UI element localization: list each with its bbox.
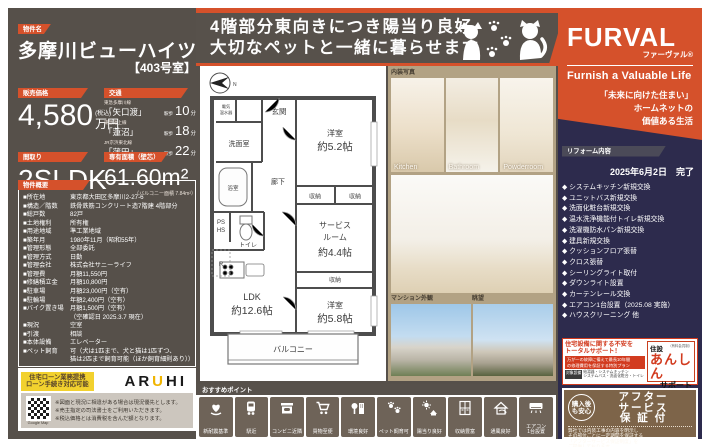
room-label-ldk: LDK [243,292,261,302]
access-ribbon: 交通 [104,88,188,98]
point-tile-convenience: コンビニ近隣 [270,397,304,437]
slogan-line2: ホームネットの [567,102,693,115]
overview-key: ■現況 [23,322,70,331]
anshin-logo-main: あんしん [650,353,692,381]
overview-value: 月額23,000円（空有） [70,288,191,297]
photo-caption: Powderroom [503,164,543,171]
overview-key: ■修繕積立金 [23,279,70,288]
living-room-photo [391,175,553,293]
overview-key: ■駐車場 [23,288,70,297]
convenience-store-icon [279,400,295,416]
room-label-heater: 電気 [222,103,230,110]
overview-key: ■バイク置き場 [23,305,70,314]
point-label: ペット飼育可 [379,430,409,436]
room-label-toilet: トイレ [239,243,257,249]
google-map-qr-code [26,396,51,421]
point-label: 収納豊富 [455,430,475,436]
room-label-bath: 浴室 [227,184,239,192]
building-exterior-photo [391,304,471,376]
equipment-warranty-badge: 住宅設備に関する不安を トータルサポート！ 万が一の故障に備えて最長10年間 の… [562,338,698,385]
overview-value: 月額10,800円 [70,279,191,288]
point-tile-environment: 環境良好 [341,397,375,437]
room-label-hs: HS [217,228,225,234]
layout-ribbon: 間取り [18,152,88,162]
walk-minutes: 22 [175,145,189,157]
overview-key [23,314,70,323]
reform-item: ◆ 洗面化粧台新規交換 [562,204,698,215]
reform-item: ◆ ダウンライト設置 [562,279,698,290]
disclaimer-note: ※売主指定の司法書士をご利用いただきます。 [55,407,181,415]
overview-value: 年額2,400円（空有） [70,297,191,306]
aruhi-pre: AR [124,373,152,390]
room-label-service-room: サービス [319,221,351,230]
catchphrase-banner: 4階部分東向きにつき陽当り良好 大切なペットと一緒に暮らせます [196,13,564,63]
room-label-entrance: 玄関 [272,106,287,116]
point-label: 新耐震基準 [203,430,228,436]
exterior-photo-label: マンション外観 [391,295,472,304]
room-size-44: 約4.4帖 [318,246,352,259]
room-label-ps: PS [217,220,225,226]
station: 「矢口渡」 [104,107,147,117]
reform-item: ◆ ユニットバス新規交換 [562,194,698,205]
point-label: エアコン 1台設置 [526,425,546,436]
photo-caption: Kitchen [394,164,417,171]
after-service-title: アフター サービス 保 証 付 [595,392,692,424]
notes-section: Google Map ※図面と現況に相違がある場合は現況優先とします。 ※売主指… [21,393,193,428]
reform-item: ◆ 温水洗浄機能付トイレ新規交換 [562,215,698,226]
overview-key: ■土地権利 [23,220,70,229]
overview-key: ■本体設備 [23,339,70,348]
brand-slogan: 「未来に向けた住まい」 ホームネットの 価値ある生活 [567,89,693,128]
after-service-circle-badge: 購入後 も安心 [568,394,595,421]
reform-item: ◆ ハウスクリーニング 他 [562,311,698,322]
loan-section: 住宅ローン業務提携 ローン手続き対応可能 ARUHI Google Map ※図… [18,368,196,431]
reform-item: ◆ エアコン1台設置（2025.08 実施） [562,301,698,312]
overview-value: 猫は2匹まで飼育可能（ほか飼育細則あり）） [70,356,191,365]
overview-key: ■構造／階数 [23,203,70,212]
dotted-divider [568,426,692,427]
overview-value: 空室 [70,322,191,331]
circle-line2: も安心 [572,408,592,415]
station: 「蓮沼」 [104,127,138,137]
point-tile-sunlight: 陽当り良好 [413,397,447,437]
kitchen-photo: Kitchen [391,78,444,172]
overview-value: 相談 [70,331,191,340]
brand-block: FURVAL ファーヴァル® Furnish a Valuable Life 「… [558,8,702,140]
floorplan-drawing: N [200,66,386,381]
loan-badge-line2: ローン手続き対応可能 [26,381,89,389]
pets-silhouette-icon [456,16,548,62]
after-title-line: 保 証 付 [595,413,692,424]
anshin-scope-tag: 対象設備 [565,370,582,379]
room-label-closet: 収納 [349,193,361,201]
overview-value: 82戸 [70,211,191,220]
room-label-hallway: 廊下 [271,177,285,186]
area-ribbon: 専有面積（壁芯） [104,152,168,162]
room-label-heater: 温水器 [220,109,233,116]
reform-item: ◆ カーテンレール交換 [562,290,698,301]
room-label-west-room-58: 洋室 [327,300,343,310]
overview-ribbon: 物件概要 [18,180,90,190]
overview-key: ■用途地域 [23,228,70,237]
room-label-washroom: 洗面室 [229,139,250,148]
interior-photos-label: 内装写真 [391,69,553,78]
point-label: コンビニ近隣 [272,430,302,436]
slogan-line1: 「未来に向けた住まい」 [567,89,693,102]
furval-logo: FURVAL [567,24,693,50]
anshin-scope: システムバス・洗面化粧台・トイレ [583,374,644,378]
price-ribbon: 販売価格 [18,88,88,98]
bathroom-photo: Bathroom [446,78,499,172]
compass-icon: N [233,82,237,88]
overview-key: ■ペット飼育 [23,348,70,357]
walk-label: 駅歩 [164,111,173,117]
overview-key: ■総戸数 [23,211,70,220]
point-tile-station: 駅近 [235,397,269,437]
closet-icon [457,400,473,416]
route-row: 東急池上線 「蓮沼」 駅歩 18 分 [104,120,196,137]
shopping-cart-icon [315,400,331,416]
anshin-sub-line: の修理費用を保証する特別プラン [567,363,643,368]
minutes-unit: 分 [190,129,196,137]
flyer-page: 4階部分東向きにつき陽当り良好 大切なペットと一緒に暮らせます 物件名 多摩川ビ… [0,0,710,447]
overview-value: 東京都大田区多摩川2-27-6 [70,194,191,203]
reform-item: ◆ クッションフロア張替 [562,247,698,258]
point-tile-shopping: 買物至便 [306,397,340,437]
overview-value: 鉄骨鉄筋コンクリート造7階建 4階部分 [70,203,191,212]
room-size-58: 約5.8帖 [317,312,353,325]
room-number: 【403号室】 [18,59,196,76]
reform-completion-date: 2025年6月2日 完了 [562,165,694,178]
overview-value: 1980年11月（昭和55年） [70,237,191,246]
room-size-ldk: 約12.6帖 [231,304,273,317]
catchphrase-line1: 4階部分東向きにつき陽当り良好 [210,17,480,38]
overview-value: 準工業地域 [70,228,191,237]
room-label-balcony: バルコニー [273,345,313,354]
room-label-closet: 収納 [329,276,341,284]
anshin-subtitle: 万が一の故障に備えて最長10年間 の修理費用を保証する特別プラン [565,356,645,368]
room-label-west-room-52: 洋室 [327,128,343,138]
powderroom-photo: Powderroom [500,78,553,172]
loan-badge: 住宅ローン業務提携 ローン手続き対応可能 [21,372,94,391]
catchphrase: 4階部分東向きにつき陽当り良好 大切なペットと一緒に暮らせます [210,17,480,59]
reform-item: ◆ 建具新規交換 [562,237,698,248]
overview-key: ■管理会社 [23,262,70,271]
after-service-body: 弊社では内装工事の内容を明示し その部位ごとに一定期間を保証する 「アフターサー… [568,428,692,447]
room-label-fridge: R [219,262,224,268]
price-amount: 4,580 [18,101,93,131]
reform-item: ◆ シーリングライト取付 [562,269,698,280]
route-row: 東急多摩川線 「矢口渡」 駅歩 10 分 [104,100,196,117]
point-tile-pets: ペット飼育可 [377,397,411,437]
brand-divider [567,65,693,66]
overview-key: ■管理形態 [23,245,70,254]
room-label-service-room: ルーム [323,233,347,242]
floorplan-panel: N [200,66,386,381]
walk-minutes: 18 [175,125,189,137]
after-title-line: アフター [595,392,692,403]
point-label: 環境良好 [348,430,368,436]
reform-section: リフォーム内容 2025年6月2日 完了 ◆ システムキッチン新規交換 ◆ ユニ… [562,140,698,322]
overview-value: エレベーター [70,339,191,348]
point-label: 陽当り良好 [417,430,442,436]
point-label: 駅近 [246,430,256,436]
reform-ribbon: リフォーム内容 [562,146,666,157]
aruhi-logo: ARUHI [124,373,187,390]
disclaimer-note: ※図面と現況に相違がある場合は現況優先とします。 [55,399,181,407]
room-label-closet: 収納 [309,193,321,201]
air-conditioner-icon [528,400,544,416]
reform-item: ◆ システムキッチン新規交換 [562,183,698,194]
overview-key [23,356,70,365]
point-tile-ventilation: 通風良好 [484,397,518,437]
circle-line1: 購入後 [572,401,592,408]
recommended-points-strip: おすすめポイント 新耐震基準 駅近 コンビニ近隣 買物至便 環境良好 [196,384,556,439]
reform-item: ◆ 洗濯機防水パン新規交換 [562,226,698,237]
overview-key: ■引渡 [23,331,70,340]
environment-icon [350,400,366,416]
aruhi-post: HI [166,373,187,390]
photos-panel: 内装写真 Kitchen Bathroom Powderroom マンション外観… [388,66,556,381]
qr-caption: Google Map [24,421,52,425]
anshin-title: トータルサポート！ [565,348,645,355]
brand-tagline: Furnish a Valuable Life [567,70,693,82]
airflow-house-icon [493,400,509,416]
overview-value: 全部委託 [70,245,191,254]
paw-icon [386,400,402,416]
minutes-unit: 分 [190,109,196,117]
loan-badge-line1: 住宅ローン業務提携 [26,374,89,382]
catchphrase-line2: 大切なペットと一緒に暮らせます [210,38,480,59]
after-service-warranty: 購入後 も安心 アフター サービス 保 証 付 弊社では内装工事の内容を明示し … [562,388,698,439]
room-size-52: 約5.2帖 [317,140,353,153]
aruhi-u: U [152,373,166,390]
overview-value: 株式会社サニーライフ [70,262,191,271]
minutes-unit: 分 [190,149,196,157]
walk-label: 駅歩 [164,131,173,137]
reform-item: ◆ クロス張替 [562,258,698,269]
point-tile-aircon: エアコン 1台設置 [519,397,553,437]
point-label: 買物至便 [313,430,333,436]
overview-key: ■築年月 [23,237,70,246]
overview-value: 所有権 [70,220,191,229]
anshin-logo: 住設（有料会員制） あんしん サポート [647,341,695,382]
sun-house-icon [421,400,437,416]
point-tile-storage: 収納豊富 [448,397,482,437]
points-header: おすすめポイント [196,384,556,395]
access-routes: 東急多摩川線 「矢口渡」 駅歩 10 分 東急池上線 「蓮沼」 駅歩 18 分 … [104,100,196,160]
walk-minutes: 10 [175,105,189,117]
view-photo [473,304,553,376]
disclaimer-note: ※税込価格とは消費税を含んだ額となります。 [55,415,181,423]
overview-value: （空確認日 2025.3.7 現在） [70,314,191,323]
point-tile-quake-standard: 新耐震基準 [199,397,233,437]
overview-value: 月額1,500円（空有） [70,305,191,314]
overview-key: ■駐輪場 [23,297,70,306]
property-overview: 物件概要 ■所在地東京都大田区多摩川2-27-6 ■構造／階数鉄骨鉄筋コンクリー… [18,180,196,367]
point-label: 通風良好 [491,430,511,436]
view-photo-label: 眺望 [472,295,553,304]
quake-standard-icon [208,400,224,416]
overview-key: ■所在地 [23,194,70,203]
photo-caption: Bathroom [449,164,479,171]
train-icon [243,400,259,416]
